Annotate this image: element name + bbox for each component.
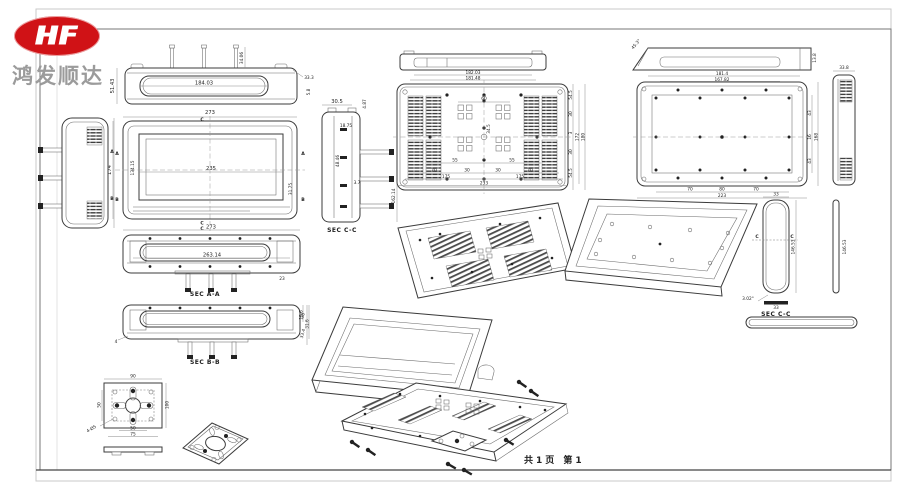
- bottom-strip-view: [746, 317, 857, 328]
- section-bb-view: 15.6 31.6 4 SEC B-B: [115, 305, 311, 366]
- centerline-c-aa: C: [200, 221, 204, 227]
- dim-r4: 30: [568, 149, 574, 155]
- exploded-view: 38 33.4: [299, 305, 568, 476]
- dim-sec-depth: 30.5: [331, 99, 343, 105]
- section-cc-view: 30.5 4.87 18.75 48.46 3.7 162.14 SEC C-C: [322, 99, 397, 234]
- dim-vesa-h: 34.5: [486, 124, 492, 134]
- open-tray-isometric: [565, 199, 757, 296]
- dim-r1: 54.5: [568, 90, 574, 100]
- dim-sec-lip: 4.87: [362, 99, 368, 109]
- left-side-view: A B: [38, 118, 114, 228]
- dim-plate-holes: 4-Ø5: [85, 423, 98, 434]
- dim-r3: 3: [568, 131, 574, 134]
- antenna-pins-side: [38, 147, 62, 209]
- dim-bracket-angle: 3.02°: [742, 296, 754, 302]
- dim-bb-h2: 31.6: [305, 319, 311, 329]
- dim-aa-tab: 23: [279, 276, 285, 282]
- dim-total-w: 233: [480, 181, 488, 187]
- front-view: 273 C 235 134.15 174 31.75 A B A B C: [107, 110, 305, 232]
- section-bb-label: SEC B-B: [190, 359, 220, 366]
- vesa-plate-view: 90 50 100 50 75 4-Ø5: [85, 374, 171, 456]
- company-logo: HF: [14, 16, 100, 56]
- strip-view: 146.53: [833, 200, 848, 293]
- dim-plate-width: 90: [130, 374, 136, 380]
- dim-profile-angle: 45.3°: [630, 38, 642, 51]
- dim-panel-r2: 16: [807, 134, 813, 140]
- section-mark-b-left: B: [115, 197, 119, 203]
- dim-sec-mid: 48.46: [335, 155, 341, 168]
- section-mark-c-left: C: [755, 234, 759, 240]
- antenna-pins-section: [360, 149, 394, 209]
- right-side-view: 33.8: [833, 65, 855, 185]
- dim-m2: 175: [516, 174, 524, 180]
- dim-top-pin: 34.06: [239, 52, 245, 65]
- centerline-c-bottom: C: [200, 226, 204, 232]
- dim-panel-total-w: 223: [718, 193, 726, 199]
- section-mark-a: A: [110, 149, 114, 155]
- dim-side-width: 33.8: [839, 65, 849, 71]
- right-top-profile: 45.3° 181.4 167.82 13.8: [630, 38, 818, 83]
- section-mark-b: B: [110, 196, 114, 202]
- section-mark-b-right: B: [301, 197, 305, 203]
- bb-pins: [187, 342, 237, 359]
- section-mark-a-left: A: [115, 151, 119, 157]
- rear-panel-view: 70 80 70 223 43 16 43 168: [633, 82, 820, 199]
- dim-rear-profile-w1: 182.03: [465, 70, 480, 76]
- dim-total-h: 180: [581, 133, 587, 141]
- dim-pitch-r: 55: [509, 158, 515, 164]
- dim-aa-inner: 263.14: [203, 253, 222, 259]
- dim-plate-left: 50: [97, 402, 103, 408]
- dim-top-slot: 184.03: [195, 81, 213, 87]
- dim-bb-foot: 4: [115, 339, 118, 345]
- dim-pitch-l: 55: [452, 158, 458, 164]
- vesa-plate-isometric: [183, 423, 248, 464]
- rear-top-profile: 182.03 181.48: [400, 51, 546, 82]
- dim-bracket-height: 146.53: [791, 239, 797, 254]
- dim-profile-end: 13.8: [812, 53, 818, 63]
- dim-plate-right: 100: [165, 401, 171, 409]
- vented-tray-isometric: [398, 203, 576, 298]
- aa-pins: [185, 274, 237, 292]
- dim-m1: 175: [442, 174, 450, 180]
- dim-vesa-w: 60: [481, 96, 487, 102]
- dim-b4: 70: [527, 168, 533, 174]
- dim-front-width: 273: [205, 110, 215, 116]
- dim-plate-b1: 50: [130, 426, 136, 432]
- dim-panel-b3: 70: [753, 187, 759, 193]
- dim-b2: 30: [464, 168, 470, 174]
- dim-panel-total-h: 168: [814, 133, 820, 141]
- dim-aa-width: 273: [206, 225, 216, 231]
- section-aa-view: 273 C 263.14 23 SEC A-A: [123, 221, 300, 299]
- section-aa-label: SEC A-A: [190, 291, 220, 298]
- engineering-drawing: 184.03 51.43 34.06 33.3 5.8 273 C 235 13…: [0, 0, 900, 500]
- drawing-sheet: 184.03 51.43 34.06 33.3 5.8 273 C 235 13…: [0, 0, 900, 500]
- dim-screen-height: 134.15: [130, 160, 136, 175]
- dim-plate-b2: 75: [130, 432, 136, 438]
- dim-panel-r1: 43: [807, 110, 813, 116]
- dim-r5: 54.5: [568, 168, 574, 178]
- dim-sec-rib: 3.7: [354, 180, 361, 186]
- dim-top-corner: 33.3: [304, 75, 314, 81]
- page-info: 共1页 第1: [524, 453, 585, 466]
- section-cc-label: SEC C-C: [327, 227, 357, 234]
- antenna-pins: [170, 45, 239, 68]
- dim-b3: 30: [495, 168, 501, 174]
- top-view: 184.03 51.43 34.06 33.3 5.8: [110, 45, 314, 104]
- company-name: 鸿发顺达: [12, 60, 122, 90]
- dim-sec-offset: 18.75: [340, 123, 353, 129]
- dim-strip-height: 146.53: [842, 239, 848, 254]
- dim-panel-b2: 80: [719, 187, 725, 193]
- dim-rear-profile-w2: 181.48: [465, 76, 480, 82]
- dim-inner-h: 172: [575, 133, 581, 141]
- dim-profile-w1: 181.4: [716, 71, 729, 77]
- dim-sec-height: 162.14: [391, 188, 397, 203]
- dim-front-bezel: 31.75: [288, 183, 294, 196]
- dim-screen-width: 235: [206, 166, 216, 172]
- dim-panel-b1: 70: [687, 187, 693, 193]
- dim-b1: 70: [431, 168, 437, 174]
- logo-hf-icon: HF: [35, 21, 78, 50]
- section-mark-c-right: C: [790, 234, 794, 240]
- dim-r2: 30: [568, 111, 574, 117]
- dim-top-edge: 5.8: [306, 88, 312, 95]
- dim-bracket-width: 33: [773, 192, 779, 198]
- dim-panel-r3: 43: [807, 158, 813, 164]
- rear-view: 60 34.5 55 55 70 30 30 70 175 175 233 54…: [393, 80, 587, 194]
- section-mark-a-right: A: [301, 151, 305, 157]
